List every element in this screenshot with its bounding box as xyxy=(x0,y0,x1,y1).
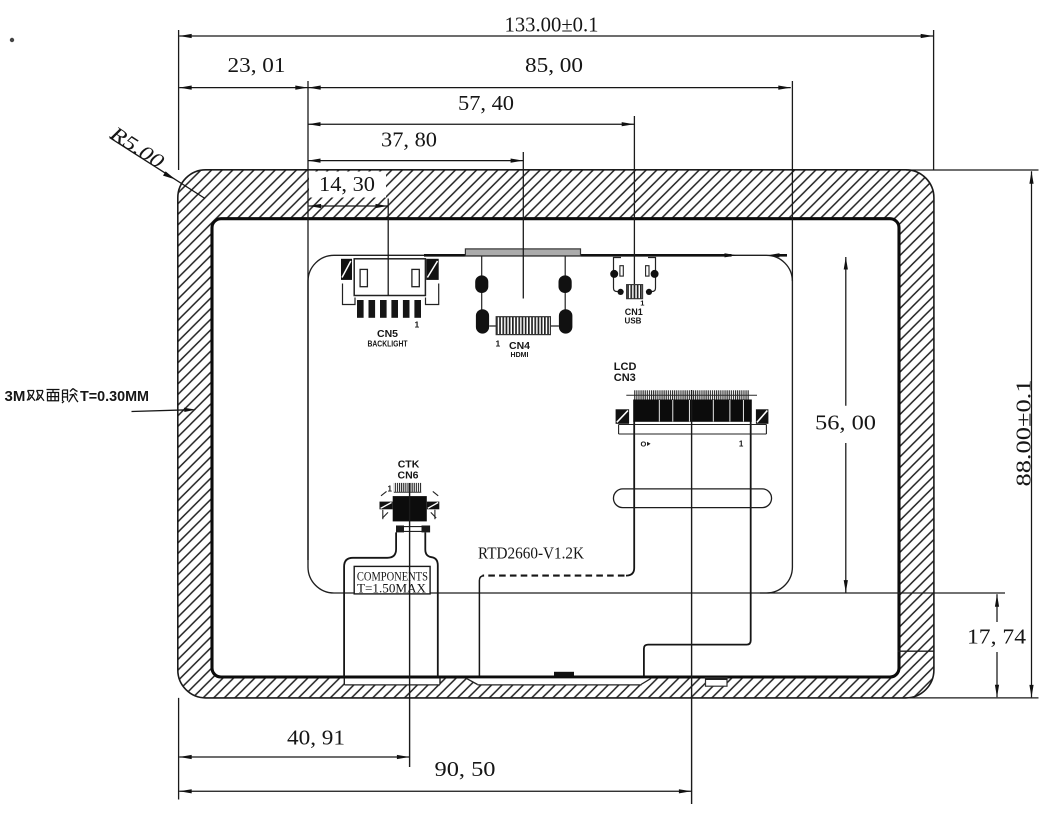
svg-text:1: 1 xyxy=(739,440,744,449)
svg-text:CN3: CN3 xyxy=(614,372,636,384)
svg-text:T=1.50MAX: T=1.50MAX xyxy=(357,580,427,595)
svg-text:USB: USB xyxy=(625,316,642,325)
svg-text:LCD: LCD xyxy=(614,361,637,373)
svg-text:RTD2660-V1.2K: RTD2660-V1.2K xyxy=(478,544,584,563)
svg-text:BACKLIGHT: BACKLIGHT xyxy=(368,339,408,348)
svg-text:56, 00: 56, 00 xyxy=(815,411,876,435)
svg-text:1: 1 xyxy=(415,320,420,330)
svg-text:17, 74: 17, 74 xyxy=(967,625,1027,649)
svg-text:O: O xyxy=(641,439,647,448)
svg-text:85, 00: 85, 00 xyxy=(525,53,583,77)
svg-text:133.00±0.1: 133.00±0.1 xyxy=(505,13,599,37)
svg-text:23, 01: 23, 01 xyxy=(228,53,286,77)
svg-text:T=0.30MM: T=0.30MM xyxy=(80,389,149,405)
svg-text:CN1: CN1 xyxy=(625,307,643,317)
svg-text:14, 30: 14, 30 xyxy=(319,172,375,196)
svg-text:88.00±0.1: 88.00±0.1 xyxy=(1012,380,1036,487)
svg-text:40, 91: 40, 91 xyxy=(287,725,345,749)
svg-text:37, 80: 37, 80 xyxy=(381,128,437,152)
svg-text:1: 1 xyxy=(496,339,501,349)
svg-text:90, 50: 90, 50 xyxy=(435,757,496,781)
svg-text:CN5: CN5 xyxy=(377,328,398,340)
svg-text:CN4: CN4 xyxy=(509,340,530,352)
svg-text:57, 40: 57, 40 xyxy=(458,91,514,115)
svg-text:3M: 3M xyxy=(5,388,26,405)
svg-text:CN6: CN6 xyxy=(397,469,418,481)
svg-text:HDMI: HDMI xyxy=(511,352,529,359)
svg-text:1: 1 xyxy=(388,485,393,494)
